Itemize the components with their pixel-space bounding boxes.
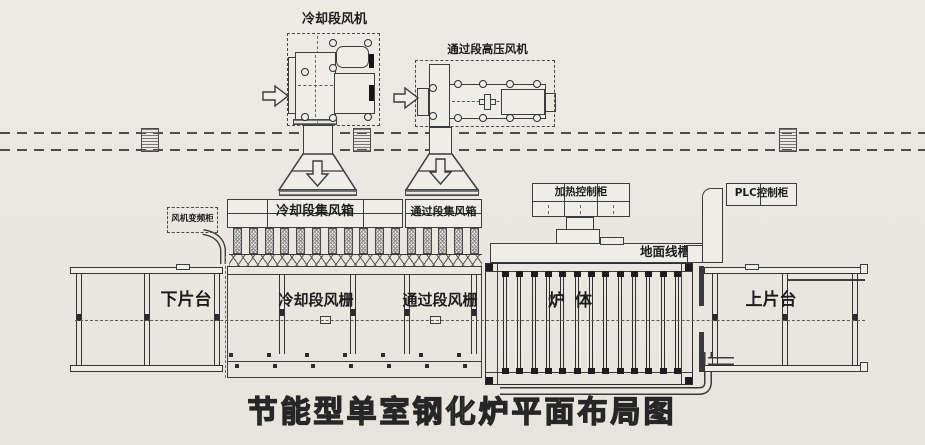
bolt-icon — [479, 80, 487, 88]
pass-funnel — [406, 154, 478, 190]
duct-column — [438, 228, 447, 254]
unload-table-top-rail — [70, 267, 223, 274]
bolt-icon — [454, 114, 462, 122]
furnace-corner — [685, 264, 692, 271]
bolt-icon — [301, 113, 309, 121]
wall-column — [779, 128, 797, 152]
funnel-flange — [279, 189, 357, 196]
duct-column — [312, 228, 321, 254]
vfd-connector-pipe-inner — [203, 232, 223, 264]
trough-step — [600, 237, 624, 245]
pass-grid-label: 通过段风栅 — [400, 292, 480, 309]
heating-cabinet-label: 加热控制柜 — [532, 187, 630, 199]
duct-column — [344, 228, 353, 254]
pass-fan-motor — [501, 89, 545, 115]
bolt-icon — [301, 68, 309, 76]
furnace-bar — [646, 274, 650, 371]
heating-cabinet-base — [556, 229, 600, 244]
grid-bottom-fittings — [235, 364, 475, 368]
pass-plenum-label: 通过段集风箱 — [405, 206, 482, 218]
bolt-icon — [364, 39, 372, 47]
table-end-cap — [860, 264, 868, 274]
load-table-label: 上片台 — [733, 291, 809, 310]
duct-columns — [233, 228, 479, 254]
furnace-bar — [589, 274, 593, 371]
bolt-icon — [329, 39, 337, 47]
bolt-icon — [479, 114, 487, 122]
bolt-icon — [506, 114, 514, 122]
load-table-top-rail — [704, 267, 867, 274]
pass-fan-coupling — [484, 94, 491, 110]
furnace-bar — [517, 274, 521, 371]
grid-divider — [471, 274, 477, 354]
load-table-bottom-rail — [704, 365, 867, 372]
cooling-plenum-label: 冷却段集风箱 — [255, 205, 375, 219]
unload-table-label: 下片台 — [148, 291, 224, 310]
bolt-icon — [429, 84, 437, 92]
furnace-left-frame — [497, 263, 498, 385]
pass-fan-endcap — [545, 93, 556, 112]
bolt-icon — [364, 113, 372, 121]
bolt-icon — [506, 80, 514, 88]
furnace-bar — [546, 274, 550, 371]
furnace-corner — [486, 377, 493, 384]
furnace-bar — [560, 274, 564, 371]
fan-mount-pad — [369, 85, 374, 101]
duct-column — [454, 228, 463, 254]
duct-column — [407, 228, 416, 254]
duct-column — [328, 228, 337, 254]
furnace-bar — [632, 274, 636, 371]
bolt-icon — [533, 80, 541, 88]
duct-column — [280, 228, 289, 254]
fan-housing-centerline — [315, 55, 316, 117]
duct-column — [265, 228, 274, 254]
furnace-bars — [503, 274, 679, 371]
grid-boundary-line — [225, 256, 226, 378]
cabinet-mark — [613, 205, 614, 214]
furnace-bar — [675, 274, 679, 371]
diagram-title: 节能型单室钢化炉平面布局图 — [247, 396, 677, 429]
duct-column — [470, 228, 479, 254]
heating-cabinet-divider — [532, 201, 630, 202]
furnace-bar — [532, 274, 536, 371]
unload-table-bottom-rail — [70, 365, 223, 372]
duct-column — [375, 228, 384, 254]
cooling-fan-motor — [336, 46, 369, 68]
furnace-corner — [685, 377, 692, 384]
wall-column — [141, 128, 159, 152]
flow-arrow-right-icon — [263, 86, 288, 106]
cabinet-mark — [548, 205, 549, 214]
diagram-canvas: 冷却段风机 通过段高压风机 — [0, 0, 925, 445]
furnace-bar — [661, 274, 665, 371]
cabinet-mark — [580, 205, 581, 214]
plc-duct — [702, 188, 723, 263]
funnel-flange — [405, 189, 479, 196]
cooling-grid-label: 冷却段风栅 — [276, 292, 356, 309]
vfd-connector-pipe — [203, 232, 223, 264]
duct-column — [249, 228, 258, 254]
wall-column — [353, 128, 371, 152]
furnace-corner — [486, 264, 493, 271]
pass-fan-inlet-flange — [417, 88, 429, 116]
grid-bottom-rail — [227, 361, 482, 362]
duct-column — [233, 228, 242, 254]
bolt-icon — [329, 64, 337, 72]
bolt-icon — [429, 112, 437, 120]
bolt-icon — [533, 114, 541, 122]
furnace-label: 炉体 — [540, 292, 610, 311]
cooling-fan-label: 冷却段风机 — [282, 13, 387, 27]
duct-column — [359, 228, 368, 254]
fan-housing-centerline — [298, 85, 333, 86]
plc-cabinet-label: PLC控制柜 — [726, 188, 797, 200]
bolt-icon — [329, 114, 337, 122]
grid-divider — [279, 274, 285, 354]
furnace-bar — [603, 274, 607, 371]
furnace-bar — [503, 274, 507, 371]
furnace-bar — [618, 274, 622, 371]
grid-divider — [350, 274, 356, 354]
duct-column — [423, 228, 432, 254]
pass-fan-outlet-neck — [429, 127, 452, 155]
vfd-cabinet-label: 风机变频柜 — [167, 215, 218, 224]
fan-mount-pad — [369, 54, 374, 68]
conveyor-centerline — [75, 320, 865, 321]
cooling-fan-outlet-neck — [303, 125, 333, 155]
furnace-bar — [575, 274, 579, 371]
table-clip — [176, 264, 190, 270]
table-end-cap — [860, 362, 868, 372]
grid-bottom-fittings — [229, 353, 480, 357]
table-clip — [745, 264, 759, 270]
duct-column — [391, 228, 400, 254]
duct-column — [296, 228, 305, 254]
grid-divider — [404, 274, 410, 354]
pass-fan-label: 通过段高压风机 — [430, 43, 545, 56]
bolt-icon — [454, 80, 462, 88]
furnace-right-frame — [681, 263, 682, 385]
